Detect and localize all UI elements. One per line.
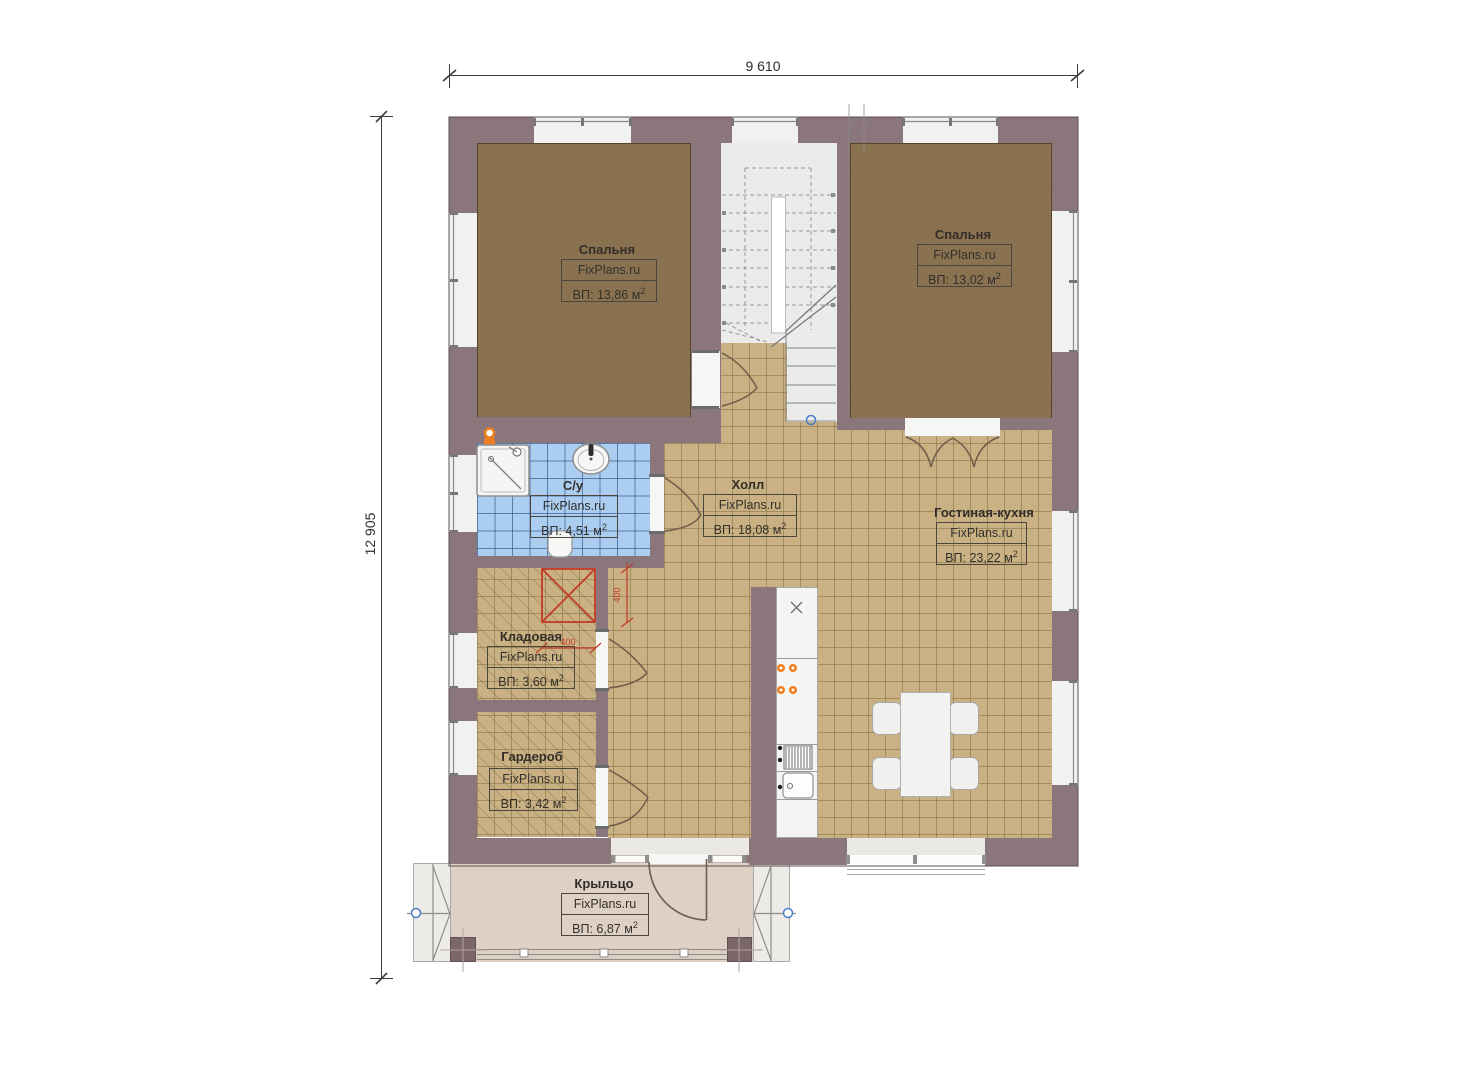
svg-text:12 905: 12 905 (362, 512, 378, 555)
svg-text:400: 400 (612, 587, 622, 602)
svg-text:9 610: 9 610 (745, 58, 780, 74)
